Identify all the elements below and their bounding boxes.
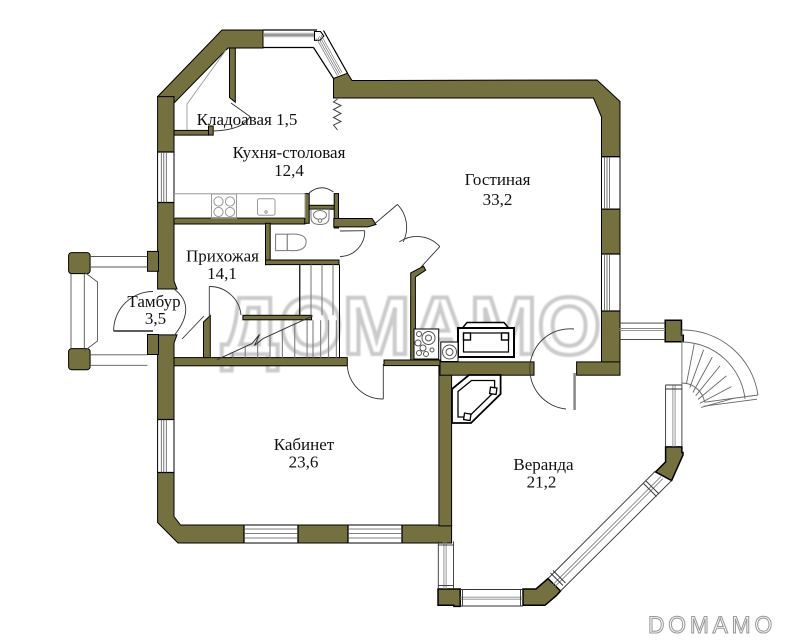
svg-text:DOMAMO: DOMAMO: [648, 612, 776, 639]
svg-text:Прихожая: Прихожая: [186, 247, 259, 266]
svg-text:12,4: 12,4: [274, 161, 304, 180]
svg-text:Кабинет: Кабинет: [274, 435, 335, 454]
svg-text:Веранда: Веранда: [513, 455, 574, 474]
svg-text:Кладоавая 1,5: Кладоавая 1,5: [197, 110, 298, 129]
svg-text:Гостиная: Гостиная: [465, 170, 531, 189]
svg-text:21,2: 21,2: [527, 473, 557, 492]
svg-text:14,1: 14,1: [207, 264, 237, 283]
svg-text:23,6: 23,6: [289, 453, 319, 472]
svg-text:Кухня-столовая: Кухня-столовая: [233, 143, 346, 162]
svg-text:3,5: 3,5: [145, 309, 166, 328]
svg-text:33,2: 33,2: [483, 190, 513, 209]
